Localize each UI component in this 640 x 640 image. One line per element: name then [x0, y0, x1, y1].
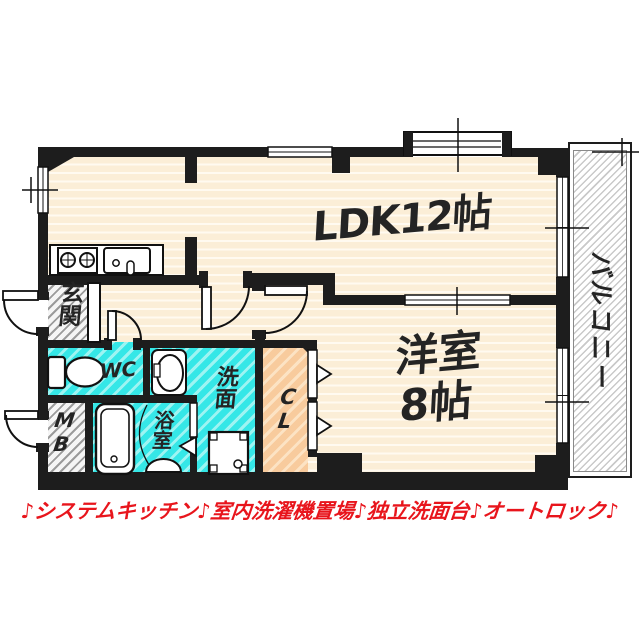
entrance-door: [3, 291, 38, 334]
balcony-window-lower: [545, 348, 589, 443]
toilet-icon: [48, 357, 104, 388]
kitchen-top-window: [268, 147, 332, 157]
meter-box-label: MB: [50, 408, 77, 456]
meter-box-door: [5, 411, 38, 447]
western-room-size: 8帖: [392, 376, 480, 433]
entrance-step: [88, 283, 100, 342]
floor-plan: LDK12帖 洋室 8帖 バルコニー 玄関 WC 洗面 浴室 CL MB ♪シス…: [0, 0, 640, 640]
balcony-window-upper: [545, 177, 589, 277]
kitchen-counter-icon: [50, 245, 163, 275]
kitchen-left-window: [22, 167, 58, 213]
ldk-hall-door: [202, 286, 249, 329]
bay-window: [404, 118, 511, 172]
entrance-label: 玄関: [54, 281, 82, 327]
washing-machine-icon: [209, 432, 248, 474]
toilet-label: WC: [99, 359, 137, 382]
bathroom-label: 浴室: [150, 410, 174, 450]
bathtub-icon: [96, 404, 134, 474]
balcony-label: バルコニー: [589, 250, 614, 393]
dimension-cross: [592, 138, 639, 166]
washbasin-icon: [152, 350, 186, 395]
washroom-label: 洗面: [211, 365, 238, 409]
closet-label: CL: [272, 385, 300, 433]
western-room-door: [265, 286, 307, 333]
wc-door: [108, 311, 141, 340]
partition-window: [405, 287, 510, 315]
features-banner: ♪システムキッチン♪室内洗濯機置場♪独立洗面台♪オートロック♪: [0, 494, 640, 524]
western-room-label: 洋室 8帖: [392, 326, 483, 433]
plan-linework: [0, 0, 640, 640]
